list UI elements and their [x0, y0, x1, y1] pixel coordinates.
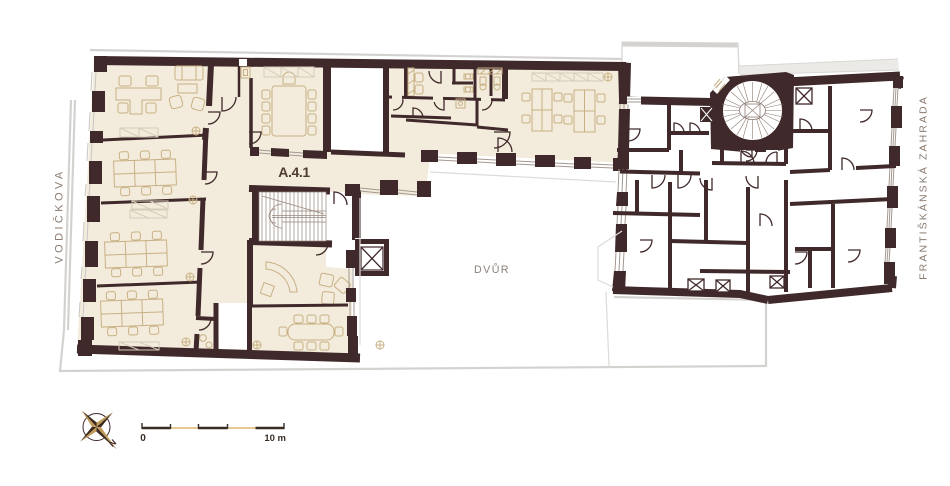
- svg-text:VODIČKOVA: VODIČKOVA: [53, 168, 66, 263]
- svg-text:FRANTIŠKÁNSKÁ ZAHRADA: FRANTIŠKÁNSKÁ ZAHRADA: [917, 95, 930, 280]
- svg-text:10 m: 10 m: [264, 433, 286, 444]
- svg-text:DVŮR: DVŮR: [474, 263, 510, 276]
- svg-text:A.4.1: A.4.1: [278, 164, 310, 180]
- svg-text:0: 0: [140, 433, 146, 444]
